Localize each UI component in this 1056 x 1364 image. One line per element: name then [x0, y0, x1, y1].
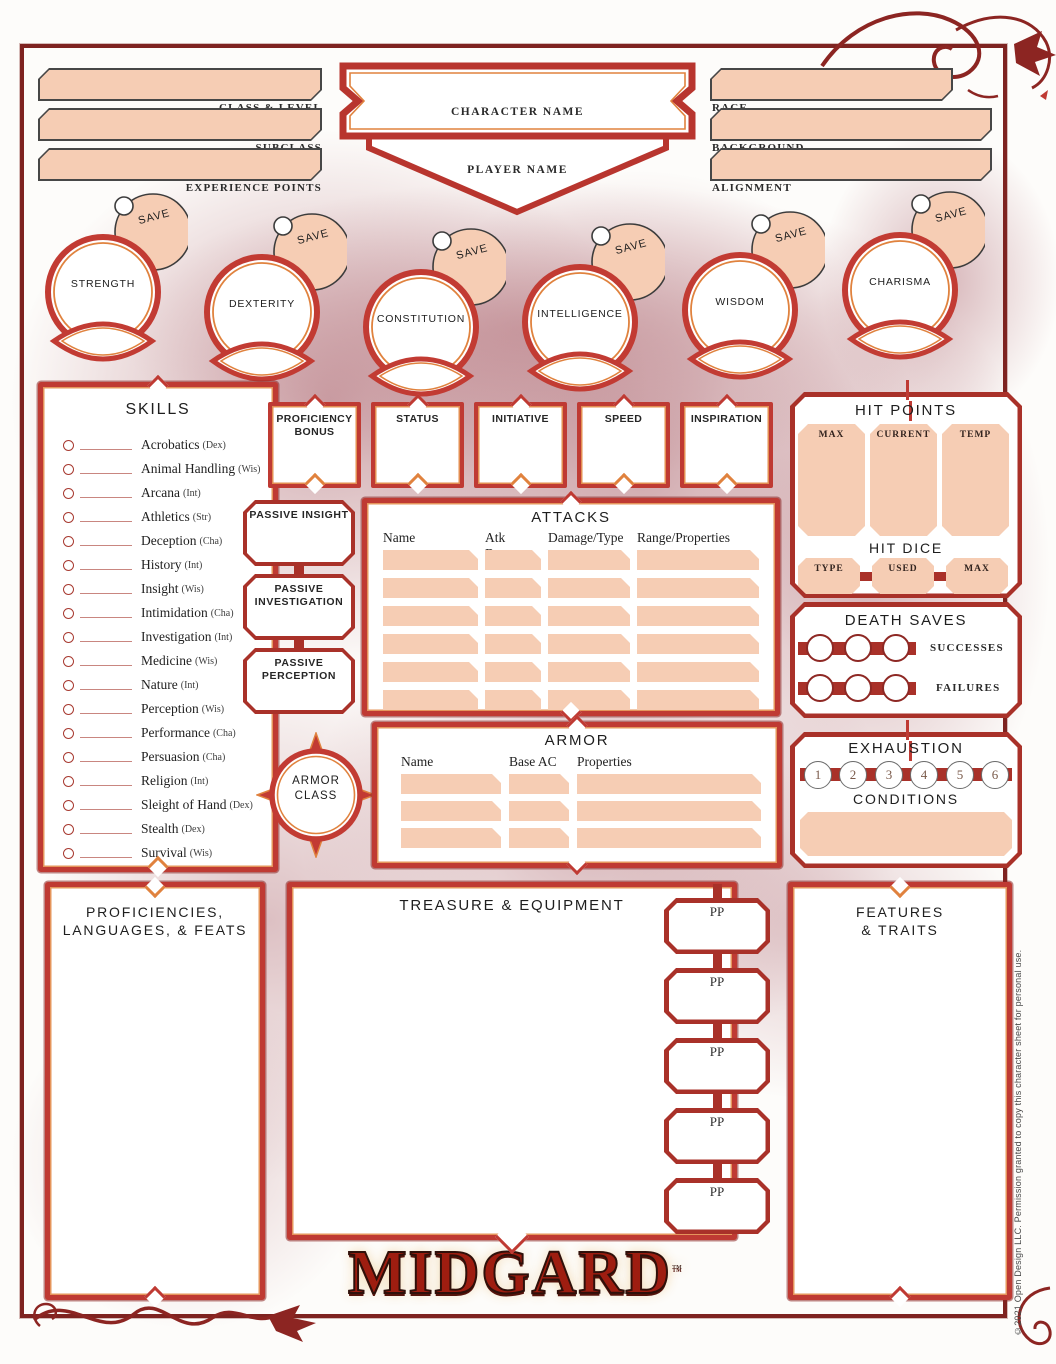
skill-ability-abbr: (Int)	[185, 560, 203, 571]
proficiency-circle[interactable]	[63, 776, 74, 787]
ability-name: CHARISMA	[869, 276, 931, 288]
connector	[713, 954, 722, 968]
save-check-circle[interactable]	[592, 227, 610, 245]
currency-box[interactable]: PP	[664, 1038, 770, 1094]
skill-row: Athletics (Str)	[63, 505, 263, 529]
conditions-title: CONDITIONS	[790, 791, 1022, 807]
skill-name: Medicine	[141, 653, 192, 669]
skill-row: Medicine (Wis)	[63, 649, 263, 673]
proficiencies-panel: PROFICIENCIES, LANGUAGES, & FEATS	[45, 882, 265, 1300]
armor-panel: ARMOR Name Base AC Properties	[372, 722, 782, 868]
skill-ability-abbr: (Wis)	[202, 704, 224, 715]
skill-row: Performance (Cha)	[63, 721, 263, 745]
passive-scores-column: PASSIVE INSIGHT PASSIVE INVESTIGATION PA…	[243, 500, 355, 714]
exhaustion-level-number: 2	[850, 767, 857, 782]
proficiency-circle[interactable]	[63, 512, 74, 523]
proficiency-circle[interactable]	[63, 584, 74, 595]
skill-ability-abbr: (Int)	[183, 488, 201, 499]
exhaustion-level-number: 6	[992, 767, 999, 782]
proficiencies-title-line2: LANGUAGES, & FEATS	[50, 921, 260, 939]
attack-entry-cell[interactable]	[548, 634, 630, 654]
background-field[interactable]	[710, 108, 992, 141]
currency-item: PP	[664, 954, 770, 1024]
skills-panel: SKILLS Acrobatics (Dex) Animal Handling …	[38, 382, 278, 872]
hp-max-label: MAX	[798, 430, 865, 440]
hit-dice-max-box[interactable]: MAX	[946, 558, 1008, 594]
skill-row: Nature (Int)	[63, 673, 263, 697]
attack-entry-cell[interactable]	[383, 662, 478, 682]
exhaustion-level-circle[interactable]: 5	[946, 761, 974, 789]
skill-name: Arcana	[141, 485, 180, 501]
armor-class-label-line2: CLASS	[295, 790, 338, 802]
skill-row: Arcana (Int)	[63, 481, 263, 505]
passive-score-label: PASSIVE INSIGHT	[243, 509, 355, 522]
attack-entry-cell[interactable]	[383, 550, 478, 570]
attack-entry-cell[interactable]	[485, 550, 541, 570]
hit-dice-max-label: MAX	[946, 564, 1008, 574]
skill-row: Insight (Wis)	[63, 577, 263, 601]
hp-max-box[interactable]: MAX	[798, 424, 865, 536]
death-saves-panel: DEATH SAVES SUCCESSES FAILURES	[790, 602, 1022, 718]
proficiency-circle[interactable]	[63, 488, 74, 499]
passive-score-item: PASSIVE PERCEPTION	[243, 648, 355, 714]
skill-ability-abbr: (Str)	[193, 512, 211, 523]
attack-entry-cell[interactable]	[548, 662, 630, 682]
armor-col-base-ac: Base AC	[509, 754, 569, 770]
exhaustion-level-circle[interactable]: 4	[910, 761, 938, 789]
passive-score-item: PASSIVE INSIGHT	[243, 500, 355, 574]
treasure-notes-area[interactable]	[304, 927, 720, 1221]
skill-row: Intimidation (Cha)	[63, 601, 263, 625]
attack-entry-cell[interactable]	[548, 606, 630, 626]
currency-item: PP	[664, 1094, 770, 1164]
skills-title: SKILLS	[43, 401, 273, 419]
skill-name: Acrobatics	[141, 437, 199, 453]
exhaustion-level-number: 3	[886, 767, 893, 782]
character-name-input[interactable]	[345, 72, 685, 102]
proficiency-circle[interactable]	[63, 560, 74, 571]
attack-entry-cell[interactable]	[637, 662, 759, 682]
skill-bonus-line[interactable]	[80, 632, 132, 642]
ability-name: DEXTERITY	[229, 298, 295, 310]
armor-entry-cell[interactable]	[577, 828, 761, 848]
death-save-failure-circle[interactable]	[883, 675, 909, 701]
currency-box[interactable]: PP	[664, 1178, 770, 1234]
attack-entry-cell[interactable]	[383, 634, 478, 654]
skill-bonus-line[interactable]	[80, 464, 132, 474]
death-save-success-circle[interactable]	[807, 635, 833, 661]
skill-bonus-line[interactable]	[80, 608, 132, 618]
stat-box-label: PROFICIENCY BONUS	[272, 413, 357, 438]
skill-row: Sleight of Hand (Dex)	[63, 793, 263, 817]
skill-bonus-line[interactable]	[80, 536, 132, 546]
currency-column: PP PP PP PP	[663, 884, 771, 1234]
death-save-tracks	[798, 634, 920, 706]
skill-ability-abbr: (Cha)	[199, 536, 222, 547]
hp-current-box[interactable]: CURRENT	[870, 424, 937, 536]
hit-dice-row: TYPE USED MAX	[798, 558, 1008, 594]
skill-bonus-line[interactable]	[80, 824, 132, 834]
attack-entry-cell[interactable]	[485, 662, 541, 682]
exhaustion-level-number: 4	[921, 767, 928, 782]
currency-label: PP	[664, 1114, 770, 1130]
exhaustion-level-number: 1	[815, 767, 822, 782]
attack-entry-cell[interactable]	[383, 606, 478, 626]
attack-entry-cell[interactable]	[637, 550, 759, 570]
exhaustion-level-circle[interactable]: 2	[839, 761, 867, 789]
ability-score: SAVE WISDOM	[655, 195, 825, 395]
skill-name: Persuasion	[141, 749, 200, 765]
currency-item: PP	[664, 1024, 770, 1094]
armor-header-row: Name Base AC Properties	[401, 754, 761, 770]
proficiency-circle[interactable]	[63, 680, 74, 691]
armor-entry-cell[interactable]	[577, 801, 761, 821]
skill-ability-abbr: (Dex)	[202, 440, 225, 451]
proficiencies-notes-area[interactable]	[62, 951, 248, 1281]
ability-score: SAVE CONSTITUTION	[336, 212, 506, 412]
skill-ability-abbr: (Wis)	[238, 464, 260, 475]
stat-box[interactable]: INITIATIVE	[474, 402, 567, 488]
armor-col-name: Name	[401, 754, 501, 770]
currency-box[interactable]: PP	[664, 898, 770, 954]
panel-notch	[906, 380, 909, 400]
armor-entry-cell[interactable]	[509, 801, 569, 821]
ability-name: INTELLIGENCE	[537, 308, 622, 320]
skill-ability-abbr: (Dex)	[230, 800, 253, 811]
attack-entry-cell[interactable]	[485, 578, 541, 598]
attack-entry-cell[interactable]	[383, 690, 478, 710]
exhaustion-panel: EXHAUSTION 1 2 3 4 5 6 CONDITIONS	[790, 732, 1022, 868]
skill-bonus-line[interactable]	[80, 704, 132, 714]
proficiency-circle[interactable]	[63, 800, 74, 811]
exhaustion-level-circle[interactable]: 6	[981, 761, 1009, 789]
armor-class-label-line1: ARMOR	[292, 775, 340, 787]
armor-entry-cell[interactable]	[577, 774, 761, 794]
armor-grid	[401, 774, 761, 848]
features-title-line2: & TRAITS	[793, 921, 1007, 939]
copyright-notice: ©2021 Open Design LLC. Permission grante…	[1013, 992, 1023, 1336]
skill-name: History	[141, 557, 182, 573]
proficiency-circle[interactable]	[63, 464, 74, 475]
death-saves-title: DEATH SAVES	[790, 612, 1022, 629]
ability-score: SAVE CHARISMA	[815, 175, 985, 375]
features-notes-area[interactable]	[805, 951, 995, 1281]
ability-score: SAVE INTELLIGENCE	[495, 207, 665, 407]
attack-entry-cell[interactable]	[637, 634, 759, 654]
skill-ability-abbr: (Wis)	[190, 848, 212, 859]
subclass-field[interactable]	[38, 108, 322, 141]
passive-score-box[interactable]: PASSIVE INSIGHT	[243, 500, 355, 566]
character-sheet-page: CLASS & LEVEL SUBCLASS EXPERIENCE POINTS…	[0, 0, 1056, 1364]
ability-name: CONSTITUTION	[377, 313, 465, 325]
passive-score-box[interactable]: PASSIVE PERCEPTION	[243, 648, 355, 714]
hit-points-panel: HIT POINTS MAX CURRENT TEMP HIT DICE TYP…	[790, 392, 1022, 598]
attacks-grid	[383, 550, 759, 710]
skill-list: Acrobatics (Dex) Animal Handling (Wis) A…	[63, 433, 263, 865]
skill-ability-abbr: (Int)	[181, 680, 199, 691]
hit-dice-used-box[interactable]: USED	[872, 558, 934, 594]
death-save-failure-circle[interactable]	[807, 675, 833, 701]
hit-dice-type-label: TYPE	[798, 564, 860, 574]
hit-points-columns: MAX CURRENT TEMP	[798, 424, 1009, 536]
ability-name: WISDOM	[715, 296, 764, 308]
proficiency-circle[interactable]	[63, 824, 74, 835]
skill-name: Survival	[141, 845, 187, 861]
proficiency-circle[interactable]	[63, 848, 74, 859]
skill-bonus-line[interactable]	[80, 776, 132, 786]
skill-name: Investigation	[141, 629, 212, 645]
skill-bonus-line[interactable]	[80, 440, 132, 450]
save-check-circle[interactable]	[115, 197, 133, 215]
currency-item: PP	[664, 884, 770, 954]
hp-current-label: CURRENT	[870, 430, 937, 440]
skill-bonus-line[interactable]	[80, 584, 132, 594]
skill-bonus-line[interactable]	[80, 656, 132, 666]
attack-entry-cell[interactable]	[383, 578, 478, 598]
armor-col-properties: Properties	[577, 754, 761, 770]
attack-entry-cell[interactable]	[548, 690, 630, 710]
save-check-circle[interactable]	[752, 215, 770, 233]
hit-points-title: HIT POINTS	[790, 402, 1022, 419]
currency-label: PP	[664, 904, 770, 920]
passive-score-item: PASSIVE INVESTIGATION	[243, 574, 355, 648]
stat-box-row: PROFICIENCY BONUS STATUS INITIATIVE SPEE…	[268, 402, 773, 488]
skill-name: Deception	[141, 533, 196, 549]
features-title-line1: FEATURES	[793, 903, 1007, 921]
proficiency-circle[interactable]	[63, 656, 74, 667]
proficiency-circle[interactable]	[63, 704, 74, 715]
proficiency-circle[interactable]	[63, 440, 74, 451]
currency-box[interactable]: PP	[664, 1108, 770, 1164]
passive-score-box[interactable]: PASSIVE INVESTIGATION	[243, 574, 355, 640]
race-field[interactable]	[710, 68, 953, 101]
skill-bonus-line[interactable]	[80, 752, 132, 762]
features-panel: FEATURES & TRAITS	[788, 882, 1012, 1300]
armor-entry-cell[interactable]	[401, 774, 501, 794]
save-check-circle[interactable]	[912, 195, 930, 213]
connector	[294, 640, 304, 648]
skill-name: Intimidation	[141, 605, 208, 621]
skill-row: Stealth (Dex)	[63, 817, 263, 841]
stat-box[interactable]: INSPIRATION	[680, 402, 773, 488]
connector	[934, 572, 946, 581]
exhaustion-level-circle[interactable]: 3	[875, 761, 903, 789]
skill-ability-abbr: (Cha)	[203, 752, 226, 763]
currency-label: PP	[664, 1044, 770, 1060]
alignment-label: ALIGNMENT	[712, 182, 792, 194]
hit-dice-title: HIT DICE	[790, 540, 1022, 556]
exhaustion-level-circle[interactable]: 1	[804, 761, 832, 789]
skill-row: Investigation (Int)	[63, 625, 263, 649]
connector	[713, 884, 722, 898]
hp-temp-label: TEMP	[942, 430, 1009, 440]
skill-bonus-line[interactable]	[80, 512, 132, 522]
attack-entry-cell[interactable]	[548, 578, 630, 598]
skill-row: Animal Handling (Wis)	[63, 457, 263, 481]
connector	[713, 1164, 722, 1178]
attack-entry-cell[interactable]	[637, 606, 759, 626]
skill-row: Acrobatics (Dex)	[63, 433, 263, 457]
stat-box[interactable]: SPEED	[577, 402, 670, 488]
skill-bonus-line[interactable]	[80, 848, 132, 858]
skill-bonus-line[interactable]	[80, 560, 132, 570]
skill-name: Performance	[141, 725, 210, 741]
skill-bonus-line[interactable]	[80, 488, 132, 498]
death-save-success-circle[interactable]	[845, 635, 871, 661]
skill-ability-abbr: (Cha)	[213, 728, 236, 739]
attack-entry-cell[interactable]	[637, 578, 759, 598]
skill-row: Religion (Int)	[63, 769, 263, 793]
attacks-panel: ATTACKS Name Atk Bonus Damage/Type Range…	[362, 498, 780, 716]
armor-entry-cell[interactable]	[509, 774, 569, 794]
attack-entry-cell[interactable]	[548, 550, 630, 570]
attack-entry-cell[interactable]	[485, 690, 541, 710]
skill-row: Persuasion (Cha)	[63, 745, 263, 769]
armor-entry-cell[interactable]	[401, 828, 501, 848]
proficiency-circle[interactable]	[63, 728, 74, 739]
skill-name: Insight	[141, 581, 179, 597]
attack-entry-cell[interactable]	[637, 690, 759, 710]
skill-ability-abbr: (Wis)	[182, 584, 204, 595]
skill-row: Deception (Cha)	[63, 529, 263, 553]
skill-name: Nature	[141, 677, 178, 693]
skill-ability-abbr: (Cha)	[211, 608, 234, 619]
proficiency-circle[interactable]	[63, 608, 74, 619]
currency-label: PP	[664, 974, 770, 990]
hit-dice-type-box[interactable]: TYPE	[798, 558, 860, 594]
player-name-label: PLAYER NAME	[325, 164, 710, 176]
skill-ability-abbr: (Int)	[191, 776, 209, 787]
skill-row: Perception (Wis)	[63, 697, 263, 721]
proficiency-circle[interactable]	[63, 752, 74, 763]
hp-temp-box[interactable]: TEMP	[942, 424, 1009, 536]
skill-name: Perception	[141, 701, 199, 717]
ability-score: SAVE STRENGTH	[18, 177, 188, 377]
skill-name: Sleight of Hand	[141, 797, 227, 813]
failures-label: FAILURES	[936, 682, 1000, 694]
skill-name: Athletics	[141, 509, 190, 525]
save-check-circle[interactable]	[274, 217, 292, 235]
armor-class-compass: ARMOR CLASS	[256, 732, 376, 858]
passive-score-label: PASSIVE INVESTIGATION	[243, 583, 355, 609]
attack-entry-cell[interactable]	[485, 606, 541, 626]
skill-bonus-line[interactable]	[80, 680, 132, 690]
skill-ability-abbr: (Dex)	[182, 824, 205, 835]
ability-score: SAVE DEXTERITY	[177, 197, 347, 397]
skill-bonus-line[interactable]	[80, 728, 132, 738]
successes-label: SUCCESSES	[930, 642, 1004, 654]
proficiency-circle[interactable]	[63, 632, 74, 643]
conditions-entry-box[interactable]	[800, 812, 1012, 856]
death-save-success-circle[interactable]	[883, 635, 909, 661]
exhaustion-level-number: 5	[957, 767, 964, 782]
save-check-circle[interactable]	[433, 232, 451, 250]
skill-bonus-line[interactable]	[80, 800, 132, 810]
skill-name: Stealth	[141, 821, 179, 837]
class-level-field[interactable]	[38, 68, 322, 101]
currency-item: PP	[664, 1164, 770, 1234]
currency-box[interactable]: PP	[664, 968, 770, 1024]
armor-entry-cell[interactable]	[509, 828, 569, 848]
skill-row: History (Int)	[63, 553, 263, 577]
ability-name: STRENGTH	[71, 278, 135, 290]
connector	[860, 572, 872, 581]
proficiencies-title-line1: PROFICIENCIES,	[50, 903, 260, 921]
trademark-symbol: ™	[672, 1263, 682, 1274]
attack-entry-cell[interactable]	[485, 634, 541, 654]
skill-name: Animal Handling	[141, 461, 235, 477]
currency-label: PP	[664, 1184, 770, 1200]
hit-dice-used-label: USED	[872, 564, 934, 574]
stat-box[interactable]: STATUS	[371, 402, 464, 488]
character-name-label: CHARACTER NAME	[325, 106, 710, 118]
armor-entry-cell[interactable]	[401, 801, 501, 821]
player-name-input[interactable]	[365, 140, 665, 162]
stat-box[interactable]: PROFICIENCY BONUS	[268, 402, 361, 488]
passive-score-label: PASSIVE PERCEPTION	[243, 657, 355, 683]
skill-ability-abbr: (Int)	[215, 632, 233, 643]
death-save-failure-circle[interactable]	[845, 675, 871, 701]
connector	[713, 1094, 722, 1108]
connector	[713, 1024, 722, 1038]
skill-name: Religion	[141, 773, 188, 789]
skill-ability-abbr: (Wis)	[195, 656, 217, 667]
proficiency-circle[interactable]	[63, 536, 74, 547]
connector	[294, 566, 304, 574]
